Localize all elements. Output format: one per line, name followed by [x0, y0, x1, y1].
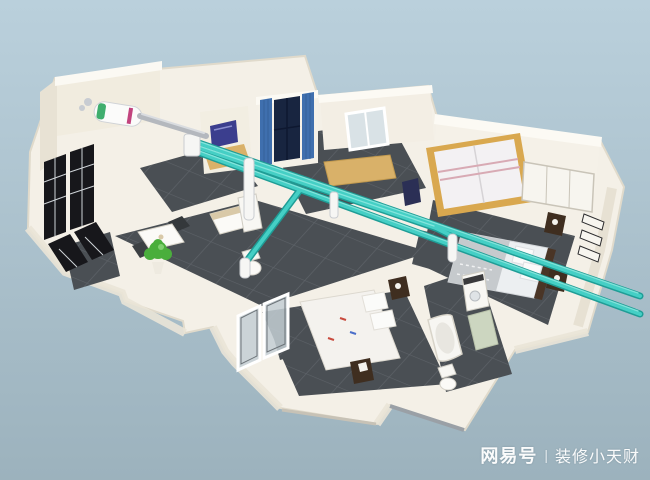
- watermark: 网易号 | 装修小天财: [480, 442, 640, 468]
- bed-second-pillow: [370, 310, 396, 330]
- watermark-brand: 网易号: [480, 442, 537, 468]
- rendered-scene: 网易号 | 装修小天财: [0, 0, 650, 480]
- pipe-fitting: [79, 105, 85, 111]
- vent-drop-living: [240, 258, 250, 278]
- vent-drop-kitchen-tall: [244, 158, 254, 220]
- apartment-3d-render: [0, 0, 650, 480]
- wall-face-left-outer: [40, 79, 57, 171]
- nightstand-lamp: [395, 283, 401, 289]
- nightstand-lamp: [552, 219, 558, 225]
- vent-drop-hall: [330, 192, 338, 218]
- duct-manifold: [184, 134, 200, 156]
- table-decor: [159, 235, 164, 240]
- bed-second-pillow: [362, 292, 388, 312]
- wall-shelves: [578, 214, 604, 262]
- pipe-fitting: [84, 98, 92, 106]
- toilet-bowl-bath: [440, 378, 456, 390]
- wall-mirror: [402, 178, 421, 206]
- hall-window: [346, 108, 388, 150]
- watermark-separator: |: [544, 447, 548, 463]
- curtain-window: [260, 92, 314, 166]
- washer-door: [470, 291, 480, 301]
- plant-highlight: [158, 244, 164, 250]
- vent-drop-bedroom: [448, 234, 457, 262]
- watermark-author: 装修小天财: [555, 443, 640, 467]
